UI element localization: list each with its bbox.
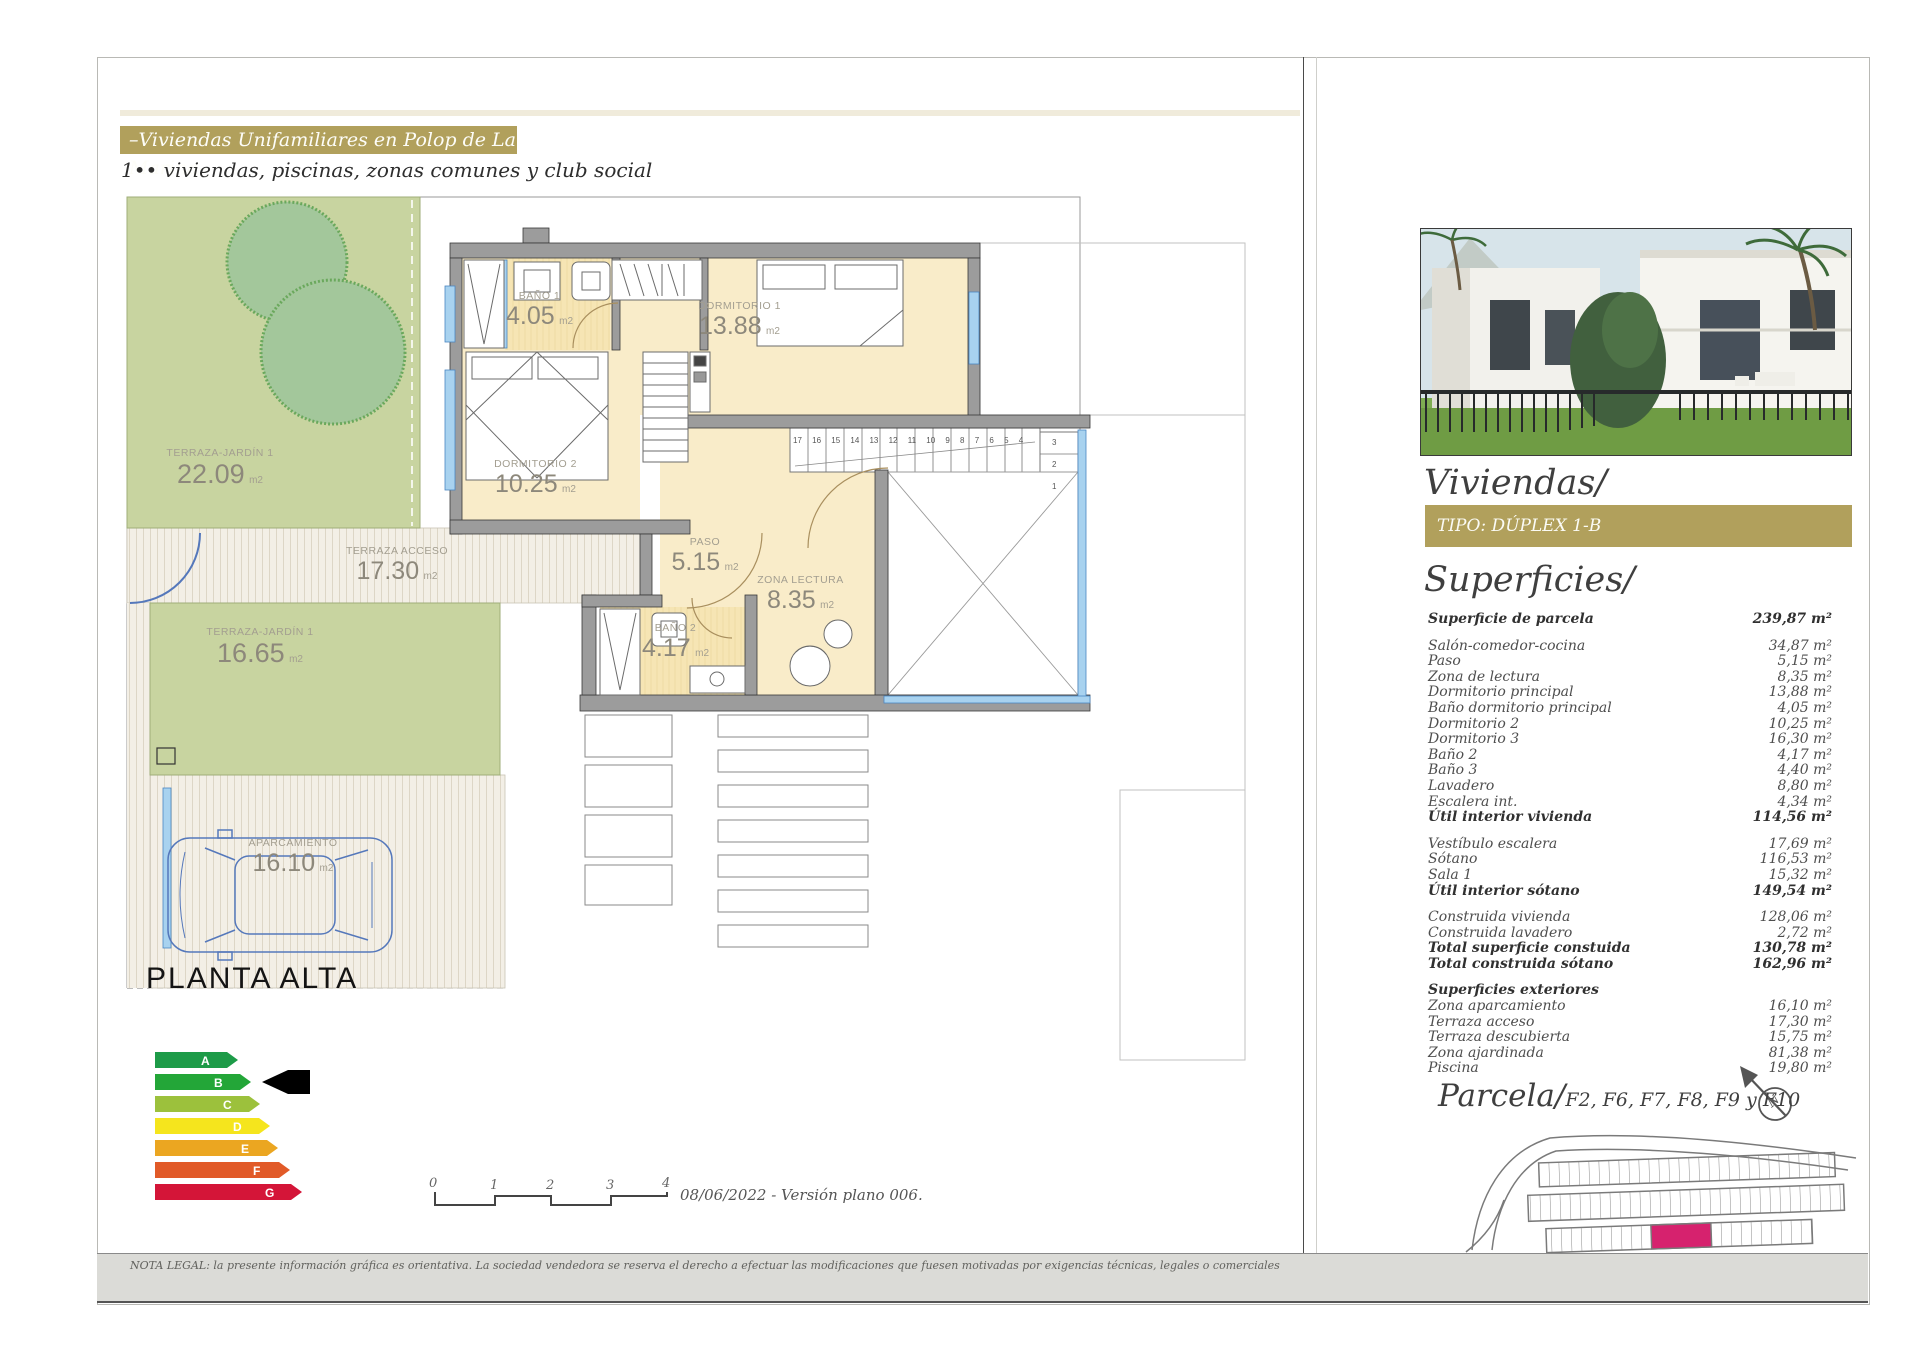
energy-letter-c: C [223,1098,232,1112]
surface-row: Dormitorio principal13,88 m² [1428,685,1832,701]
surface-row: Total superficie constuida130,78 m² [1428,941,1832,957]
stair-step-number: 3 [1052,438,1056,447]
floor-title: PLANTA ALTA [146,962,358,996]
surface-row: Zona aparcamiento16,10 m² [1428,999,1832,1015]
room-label-dorm2: DORMITORIO 210.25 m2 [468,458,603,499]
surface-row: Zona ajardinada81,38 m² [1428,1046,1832,1062]
type-label-bar: TIPO: DÚPLEX 1-B [1425,505,1852,547]
room-label-bano1: BAÑO 14.05 m2 [482,290,597,331]
scale-tick: 1 [490,1178,498,1193]
sidebar-heading: Viviendas/ [1424,463,1607,503]
surface-row: Salón-comedor-cocina34,87 m² [1428,639,1832,655]
surface-row: Dormitorio 316,30 m² [1428,732,1832,748]
project-title-bar: –Viviendas Unifamiliares en Polop de La … [120,126,517,154]
surface-row: Sala 115,32 m² [1428,868,1832,884]
house-photo [1420,228,1852,456]
stair-step-number: 2 [1052,460,1056,469]
sidebar-divider [1303,57,1304,1253]
surface-row: Lavadero8,80 m² [1428,779,1832,795]
room-label-garden2: TERRAZA-JARDÍN 116.65 m2 [190,626,330,669]
surface-row: Construida vivienda128,06 m² [1428,910,1832,926]
surface-row: Baño 24,17 m² [1428,748,1832,764]
surfaces-heading: Superficies/ [1424,560,1635,600]
surface-row: Superficie de parcela239,87 m² [1428,612,1832,628]
room-label-bano2: BAÑO 24.17 m2 [618,622,733,663]
surface-row: Total construida sótano162,96 m² [1428,957,1832,973]
plan-version-caption: 08/06/2022 - Versión plano 006. [680,1186,923,1204]
surface-row: Dormitorio 210,25 m² [1428,717,1832,733]
room-label-dorm1: DORMITORIO 113.88 m2 [672,300,807,341]
energy-letter-g: G [265,1186,274,1200]
parcela-heading: Parcela/F2, F6, F7, F8, F9 y F10 [1438,1078,1800,1114]
scale-tick: 0 [429,1176,437,1191]
sidebar-divider-inner [1316,57,1317,1253]
room-label-zona-lectura: ZONA LECTURA8.35 m2 [738,574,863,615]
surface-row: Zona de lectura8,35 m² [1428,670,1832,686]
surface-row: Útil interior vivienda114,56 m² [1428,810,1832,826]
scale-tick: 4 [662,1176,670,1191]
room-label-aparcamiento: APARCAMIENTO16.10 m2 [228,837,358,878]
energy-letter-f: F [253,1164,260,1178]
plan-sheet: –Viviendas Unifamiliares en Polop de La … [0,0,1920,1357]
surface-row: Superficies exteriores [1428,983,1832,999]
energy-letter-b: B [214,1076,223,1090]
surface-row: Terraza descubierta15,75 m² [1428,1030,1832,1046]
room-label-acceso: TERRAZA ACCESO17.30 m2 [332,545,462,586]
surface-row: Baño dormitorio principal4,05 m² [1428,701,1832,717]
surfaces-table: Superficie de parcela239,87 m² Salón-com… [1428,612,1832,1077]
stair-step-number: 1 [1052,482,1056,491]
legal-note: NOTA LEGAL: la presente información gráf… [130,1259,1780,1272]
room-label-paso: PASO5.15 m2 [650,536,760,577]
energy-letter-a: A [201,1054,210,1068]
scale-tick: 3 [606,1178,614,1193]
surface-row: Útil interior sótano149,54 m² [1428,884,1832,900]
header-accent-rule [120,110,1300,116]
stair-step-numbers: 17 16 15 14 13 12 11 10 9 8 7 6 5 4 [793,436,1040,445]
project-subtitle: 1•• viviendas, piscinas, zonas comunes y… [121,158,652,182]
surface-row: Baño 34,40 m² [1428,763,1832,779]
energy-letter-d: D [233,1120,242,1134]
surface-row: Terraza acceso17,30 m² [1428,1015,1832,1031]
surface-row: Vestíbulo escalera17,69 m² [1428,837,1832,853]
room-label-garden1: TERRAZA-JARDÍN 122.09 m2 [150,447,290,490]
surface-row: Construida lavadero2,72 m² [1428,926,1832,942]
surface-row: Paso5,15 m² [1428,654,1832,670]
surface-row: Sótano116,53 m² [1428,852,1832,868]
scale-tick: 2 [546,1178,554,1193]
energy-letter-e: E [241,1142,249,1156]
surface-row: Escalera int.4,34 m² [1428,795,1832,811]
surface-row: Piscina19,80 m² [1428,1061,1832,1077]
